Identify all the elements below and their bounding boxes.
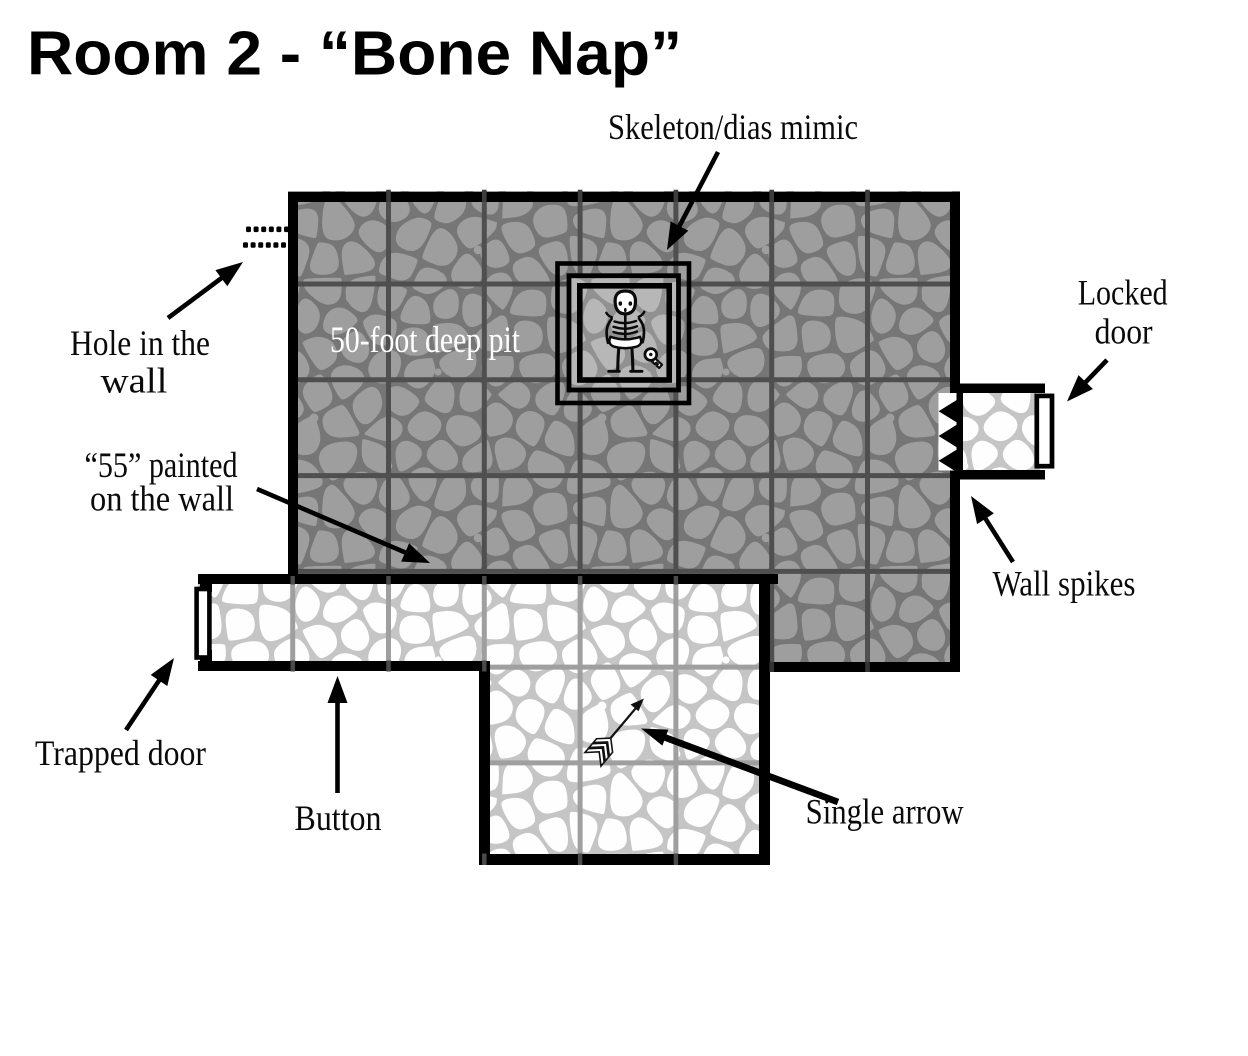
svg-text:50-foot deep pit: 50-foot deep pit xyxy=(330,320,521,361)
svg-text:Wall spikes: Wall spikes xyxy=(993,564,1136,604)
svg-text:Trapped door: Trapped door xyxy=(35,733,206,773)
svg-text:Hole in the: Hole in the xyxy=(70,323,210,363)
svg-text:Skeleton/dias mimic: Skeleton/dias mimic xyxy=(608,107,858,147)
svg-text:Single arrow: Single arrow xyxy=(806,792,964,832)
svg-text:door: door xyxy=(1095,312,1153,352)
svg-text:wall: wall xyxy=(101,361,168,401)
svg-text:on the wall: on the wall xyxy=(90,479,234,519)
svg-text:Button: Button xyxy=(295,798,382,838)
svg-text:Room 2 - “Bone Nap”: Room 2 - “Bone Nap” xyxy=(27,20,682,89)
svg-text:Locked: Locked xyxy=(1078,272,1168,312)
